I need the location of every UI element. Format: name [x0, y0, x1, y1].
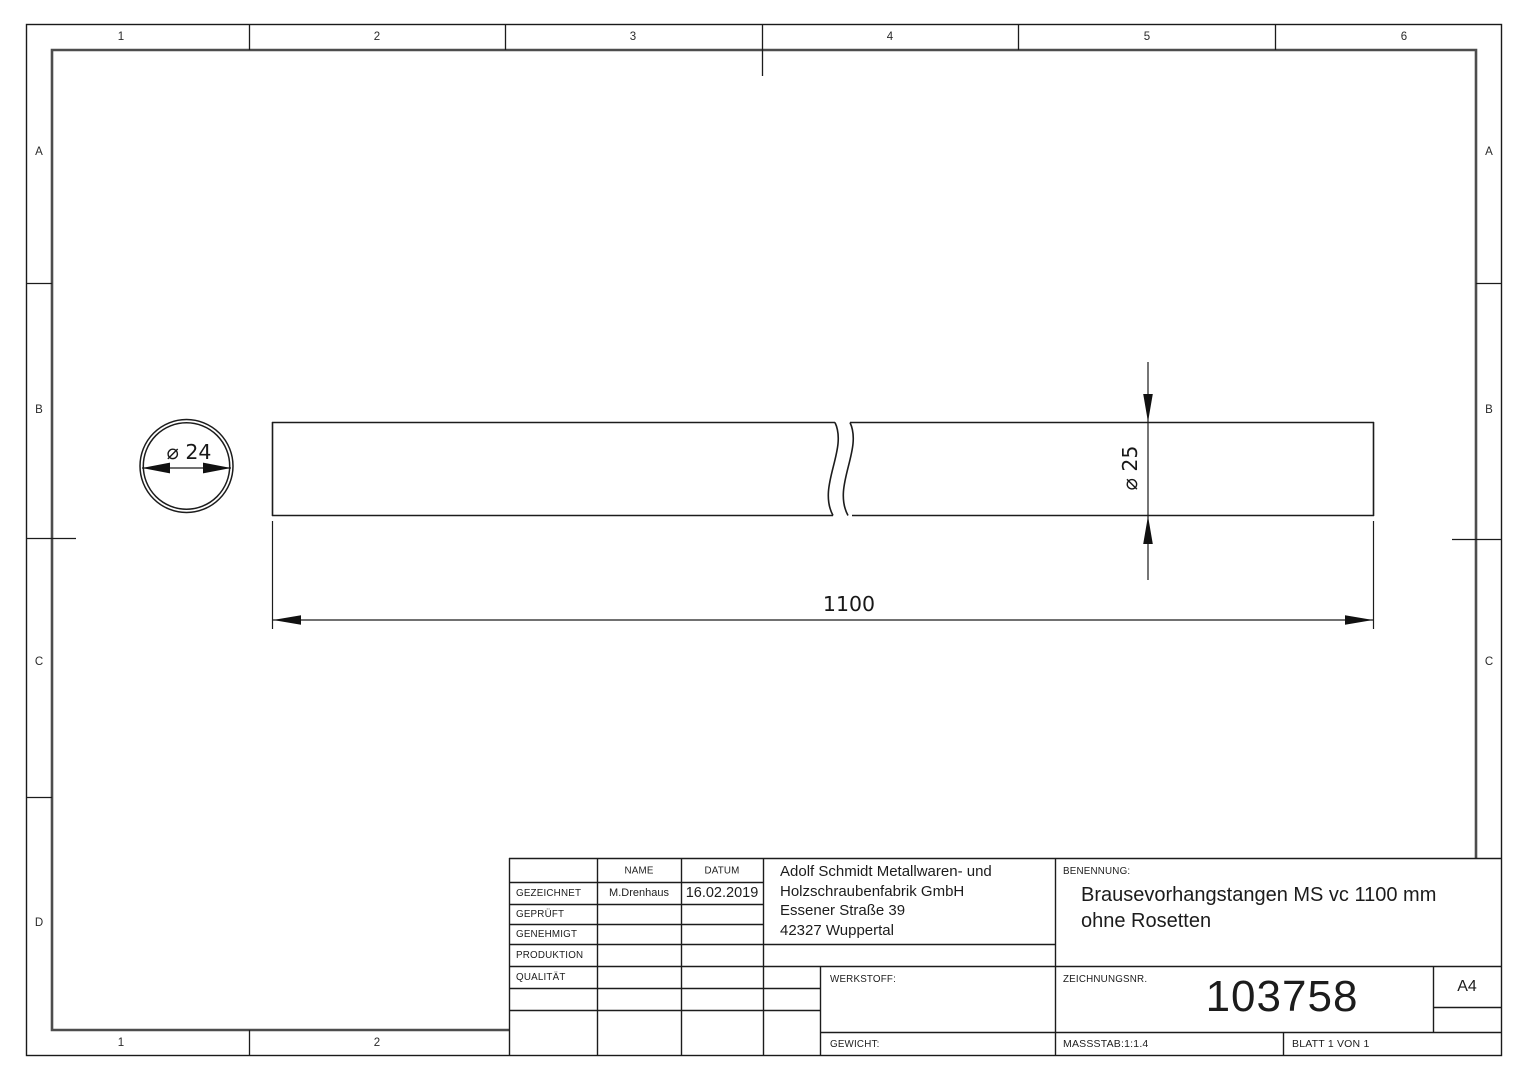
arrowhead-left-icon — [142, 463, 170, 474]
company-address-line-1: Adolf Schmidt Metallwaren- und — [780, 862, 992, 882]
grid-col-label-top-2: 2 — [374, 31, 380, 43]
drawing-number: 103758 — [1206, 972, 1359, 1022]
tb-row-label-geprueft: GEPRÜFT — [516, 909, 564, 920]
tb-row-label-gezeichnet: GEZEICHNET — [516, 888, 581, 899]
company-address: Adolf Schmidt Metallwaren- und Holzschra… — [780, 862, 992, 940]
grid-col-label-top-6: 6 — [1401, 31, 1407, 43]
tb-header-name: NAME — [624, 866, 653, 877]
dim-end-diameter-text: ⌀ 24 — [167, 440, 212, 464]
tb-row-label-qualitaet: QUALITÄT — [516, 972, 566, 983]
arrowhead-down-icon — [1143, 394, 1153, 422]
company-address-line-3: Essener Straße 39 — [780, 901, 992, 921]
tb-drawn-date: 16.02.2019 — [686, 885, 759, 901]
arrowhead-up-icon — [1143, 516, 1153, 544]
dim-length-text: 1100 — [823, 592, 875, 616]
tb-header-datum: DATUM — [704, 866, 739, 877]
grid-row-label-right-a: A — [1485, 146, 1493, 158]
grid-col-label-top-3: 3 — [630, 31, 636, 43]
grid-col-label-bottom-1: 1 — [118, 1037, 124, 1049]
benennung-label: BENENNUNG: — [1063, 866, 1130, 877]
werkstoff-label: WERKSTOFF: — [830, 974, 896, 985]
blatt-text: BLATT 1 VON 1 — [1292, 1038, 1370, 1050]
company-address-line-4: 42327 Wuppertal — [780, 921, 992, 941]
part-title-line-1: Brausevorhangstangen MS vc 1100 mm — [1081, 882, 1436, 908]
grid-col-label-top-4: 4 — [887, 31, 893, 43]
end-view-diameter-dimension — [142, 463, 231, 474]
break-line-right — [843, 423, 853, 516]
grid-col-label-top-5: 5 — [1144, 31, 1150, 43]
grid-row-label-right-c: C — [1485, 656, 1493, 668]
tb-row-label-produktion: PRODUKTION — [516, 950, 583, 961]
rod-outline — [272, 422, 1374, 516]
paper-format: A4 — [1457, 978, 1477, 996]
break-line-left — [828, 423, 838, 516]
dim-side-diameter-text: ⌀ 25 — [1118, 446, 1142, 491]
part-title-line-2: ohne Rosetten — [1081, 908, 1436, 934]
grid-col-label-bottom-2: 2 — [374, 1037, 380, 1049]
grid-row-label-left-b: B — [35, 404, 43, 416]
gewicht-label: GEWICHT: — [830, 1039, 880, 1050]
grid-col-label-top-1: 1 — [118, 31, 124, 43]
centering-marks — [26, 24, 1502, 540]
tb-drawn-by-name: M.Drenhaus — [609, 887, 669, 899]
side-diameter-dimension — [1143, 362, 1153, 580]
grid-row-label-right-b: B — [1485, 404, 1493, 416]
massstab-text: MASSSTAB:1:1.4 — [1063, 1038, 1148, 1050]
company-address-line-2: Holzschraubenfabrik GmbH — [780, 882, 992, 902]
grid-row-label-left-a: A — [35, 146, 43, 158]
drawing-sheet: 1 2 3 4 5 6 1 2 A B C D A B C ⌀ 24 1100 … — [0, 0, 1528, 1080]
grid-row-label-left-d: D — [35, 917, 43, 929]
tb-row-label-genehmigt: GENEHMIGT — [516, 929, 577, 940]
arrowhead-left-icon — [273, 615, 301, 625]
arrowhead-right-icon — [1345, 615, 1373, 625]
arrowhead-right-icon — [203, 463, 231, 474]
part-title: Brausevorhangstangen MS vc 1100 mm ohne … — [1081, 882, 1436, 934]
grid-row-label-left-c: C — [35, 656, 43, 668]
zeichnungsnr-label: ZEICHNUNGSNR. — [1063, 974, 1147, 985]
